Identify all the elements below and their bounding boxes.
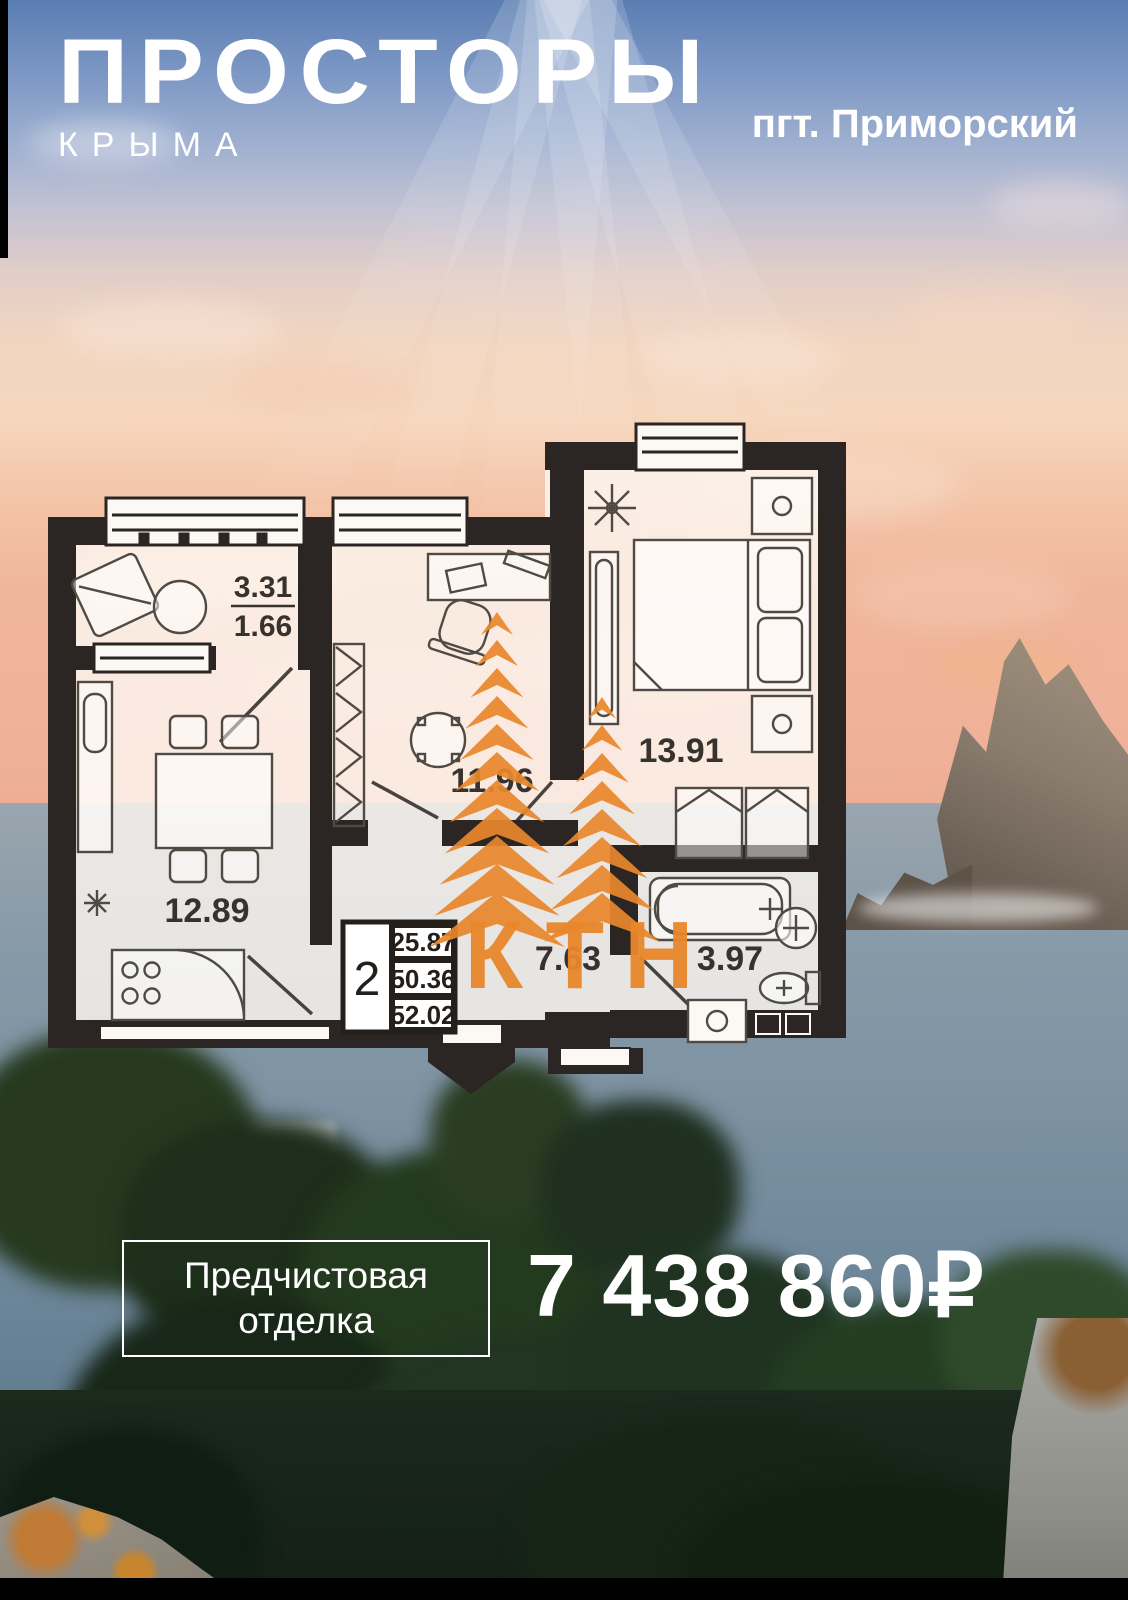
balcony-area-label: 3.31 xyxy=(234,571,292,604)
shaft xyxy=(756,1014,780,1034)
nightstand xyxy=(752,696,812,752)
bedroom-area-label: 13.91 xyxy=(638,732,723,770)
kitchen-area-label: 12.89 xyxy=(164,892,249,930)
price-value: 7 438 860 xyxy=(527,1236,928,1335)
rooms-count: 2 xyxy=(354,953,381,1006)
chair xyxy=(170,850,206,882)
summary-box: 2 25.87 50.36 52.02 xyxy=(343,922,456,1032)
floorplan: 3.31 1.66 12.89 11.96 13.91 7.63 3.97 2 … xyxy=(0,0,1128,1600)
nightstand xyxy=(752,478,812,534)
dresser xyxy=(590,552,618,724)
plant xyxy=(588,484,636,532)
storage-box xyxy=(676,788,742,858)
total-area: 52.02 xyxy=(390,1000,455,1030)
chair xyxy=(170,716,206,748)
chair xyxy=(222,850,258,882)
chair xyxy=(222,716,258,748)
area-without-balcony: 50.36 xyxy=(390,964,455,994)
watermark-text: КТН xyxy=(465,902,714,1009)
dining-table xyxy=(156,754,272,848)
finish-line1: Предчистовая xyxy=(184,1254,428,1298)
price: 7 438 860₽ xyxy=(527,1234,985,1337)
living-area-total: 25.87 xyxy=(390,927,455,957)
ruble-sign: ₽ xyxy=(928,1236,985,1335)
poster: ПРОСТОРЫ КРЫМА пгт. Приморский xyxy=(0,0,1128,1600)
finish-line2: отделка xyxy=(238,1299,374,1343)
stove-counter xyxy=(112,950,244,1020)
finish-type-box: Предчистовая отделка xyxy=(122,1240,490,1357)
balcony-area-reduced-label: 1.66 xyxy=(234,610,292,643)
storage-box xyxy=(746,788,808,858)
balcony-table xyxy=(154,581,206,633)
bed xyxy=(634,540,810,690)
shaft xyxy=(786,1014,810,1034)
